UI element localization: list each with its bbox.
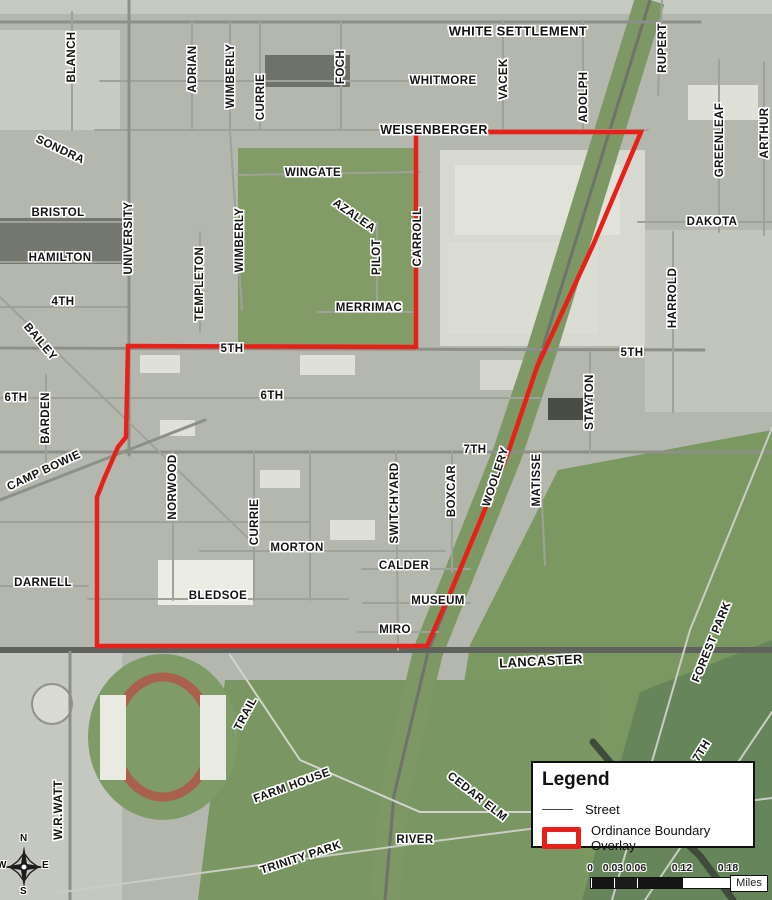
- compass-n-label: N: [20, 833, 27, 844]
- terrain-patch: [688, 85, 758, 120]
- scale-segment: [591, 878, 615, 888]
- scale-unit-label: Miles: [730, 875, 768, 892]
- terrain-patch: [0, 218, 125, 264]
- terrain-patch: [200, 695, 226, 780]
- legend-item-street: Street: [542, 798, 753, 820]
- compass-w-label: W: [0, 860, 6, 871]
- terrain-patch: [330, 520, 375, 540]
- scale-tick-label: 0: [587, 862, 593, 874]
- terrain-patch: [265, 55, 350, 87]
- street-line: [396, 452, 398, 650]
- legend-item-label: Ordinance Boundary Overlay: [591, 823, 753, 853]
- scale-tick-label: 0.12: [672, 862, 692, 874]
- legend-item-boundary: Ordinance Boundary Overlay: [542, 827, 753, 849]
- scale-bar: Miles 00.030.060.120.18: [590, 862, 768, 896]
- scale-segment: [614, 878, 638, 888]
- map-page: BLANCHSONDRAADRIANWIMBERLYCURRIEFOCHWHIT…: [0, 0, 772, 900]
- terrain-patch: [32, 684, 72, 724]
- legend-item-label: Street: [585, 802, 620, 817]
- scale-tick-label: 0.06: [626, 862, 646, 874]
- terrain-patch: [100, 695, 126, 780]
- terrain-patch: [548, 398, 592, 420]
- compass-e-label: E: [42, 860, 49, 871]
- scale-segment: [637, 878, 684, 888]
- street-line-symbol: [542, 809, 573, 810]
- scale-tick-label: 0.18: [718, 862, 738, 874]
- scale-segment: [683, 878, 730, 888]
- terrain-patch: [300, 355, 355, 375]
- north-arrow: N E S W: [0, 838, 48, 896]
- terrain-patch: [160, 420, 195, 436]
- legend: Legend Street Ordinance Boundary Overlay: [531, 761, 755, 848]
- scale-bar-segments: [590, 877, 752, 889]
- legend-title: Legend: [542, 769, 753, 791]
- boundary-swatch-symbol: [542, 827, 581, 849]
- scale-tick-label: 0.03: [603, 862, 623, 874]
- compass-s-label: S: [20, 886, 27, 897]
- terrain-patch: [238, 148, 418, 348]
- terrain-patch: [645, 230, 772, 412]
- terrain-patch: [140, 355, 180, 373]
- terrain-patch: [260, 470, 300, 488]
